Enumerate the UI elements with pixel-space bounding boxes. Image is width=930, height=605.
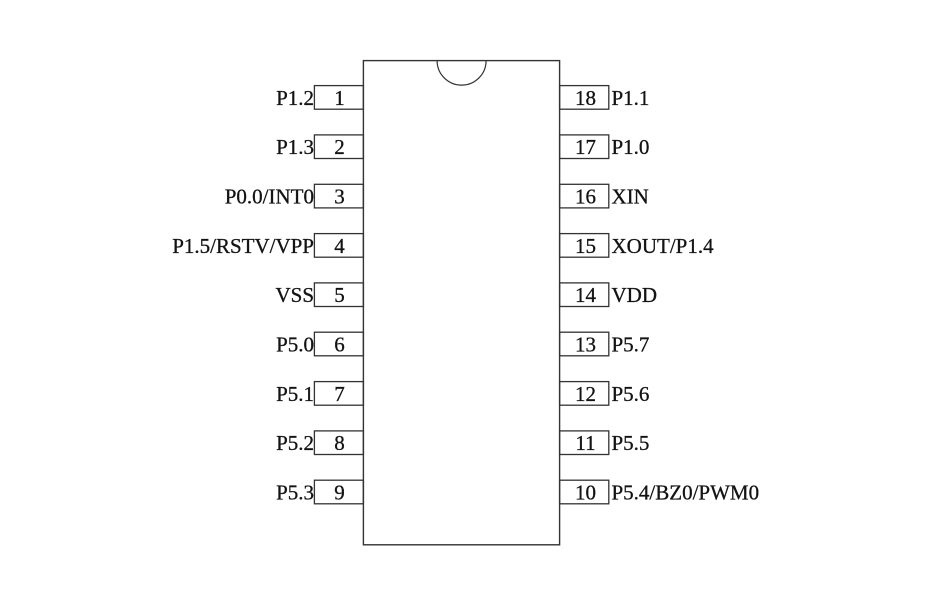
svg-text:1: 1 xyxy=(334,86,345,110)
svg-text:VDD: VDD xyxy=(612,283,658,307)
svg-text:XIN: XIN xyxy=(612,185,649,209)
svg-text:16: 16 xyxy=(575,185,596,209)
svg-text:P1.5/RSTV/VPP: P1.5/RSTV/VPP xyxy=(172,234,314,258)
svg-text:P1.0: P1.0 xyxy=(612,135,650,159)
svg-text:13: 13 xyxy=(575,333,596,357)
svg-text:P5.6: P5.6 xyxy=(612,382,650,406)
svg-text:VSS: VSS xyxy=(275,283,314,307)
svg-text:P5.0: P5.0 xyxy=(276,333,314,357)
svg-text:14: 14 xyxy=(575,283,597,307)
svg-text:P5.3: P5.3 xyxy=(276,481,314,505)
svg-text:P5.4/BZ0/PWM0: P5.4/BZ0/PWM0 xyxy=(612,481,760,505)
svg-text:11: 11 xyxy=(575,431,595,455)
svg-text:17: 17 xyxy=(575,135,596,159)
svg-text:4: 4 xyxy=(334,234,345,258)
svg-text:P0.0/INT0: P0.0/INT0 xyxy=(225,185,314,209)
svg-text:2: 2 xyxy=(334,135,345,159)
svg-text:15: 15 xyxy=(575,234,596,258)
svg-text:XOUT/P1.4: XOUT/P1.4 xyxy=(612,234,715,258)
svg-text:5: 5 xyxy=(334,283,345,307)
svg-text:P1.3: P1.3 xyxy=(276,135,314,159)
svg-text:8: 8 xyxy=(334,431,345,455)
svg-text:P5.7: P5.7 xyxy=(612,333,650,357)
svg-text:10: 10 xyxy=(575,481,596,505)
svg-text:6: 6 xyxy=(334,333,345,357)
svg-text:P1.1: P1.1 xyxy=(612,86,650,110)
svg-text:9: 9 xyxy=(334,481,345,505)
svg-text:P5.5: P5.5 xyxy=(612,431,650,455)
svg-text:P1.2: P1.2 xyxy=(276,86,314,110)
svg-text:3: 3 xyxy=(334,185,345,209)
svg-text:P5.2: P5.2 xyxy=(276,431,314,455)
svg-text:P5.1: P5.1 xyxy=(276,382,314,406)
svg-text:12: 12 xyxy=(575,382,596,406)
svg-text:18: 18 xyxy=(575,86,596,110)
svg-text:7: 7 xyxy=(334,382,345,406)
